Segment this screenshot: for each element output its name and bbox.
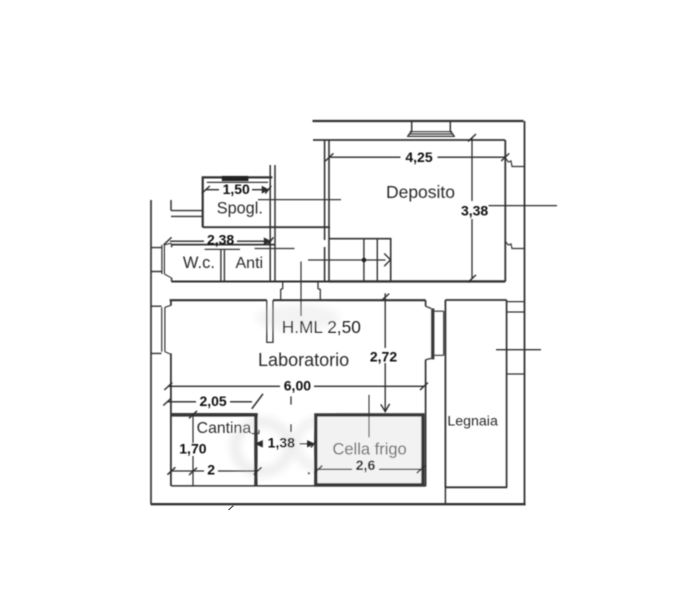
svg-text:Cantina: Cantina xyxy=(197,420,252,437)
svg-text:Deposito: Deposito xyxy=(386,182,455,202)
svg-text:Laboratorio: Laboratorio xyxy=(258,350,349,370)
svg-text:1,38: 1,38 xyxy=(268,435,295,451)
svg-text:Cella frigo: Cella frigo xyxy=(332,441,406,459)
svg-text:W.c.: W.c. xyxy=(183,254,215,272)
svg-text:6,00: 6,00 xyxy=(284,378,311,394)
svg-text:1,50: 1,50 xyxy=(223,181,250,197)
svg-text:Anti: Anti xyxy=(236,255,264,272)
svg-text:4,25: 4,25 xyxy=(405,149,432,165)
svg-text:2,38: 2,38 xyxy=(207,231,234,247)
svg-text:2: 2 xyxy=(207,462,215,478)
svg-text:1,70: 1,70 xyxy=(179,441,206,457)
svg-text:H.ML 2,50: H.ML 2,50 xyxy=(282,317,361,337)
svg-text:Legnaia: Legnaia xyxy=(447,414,498,430)
svg-text:3,38: 3,38 xyxy=(461,202,488,218)
svg-text:Spogl.: Spogl. xyxy=(217,199,263,217)
svg-text:2,6: 2,6 xyxy=(356,457,376,473)
svg-text:2,05: 2,05 xyxy=(199,393,226,409)
svg-text:2,72: 2,72 xyxy=(370,348,397,364)
